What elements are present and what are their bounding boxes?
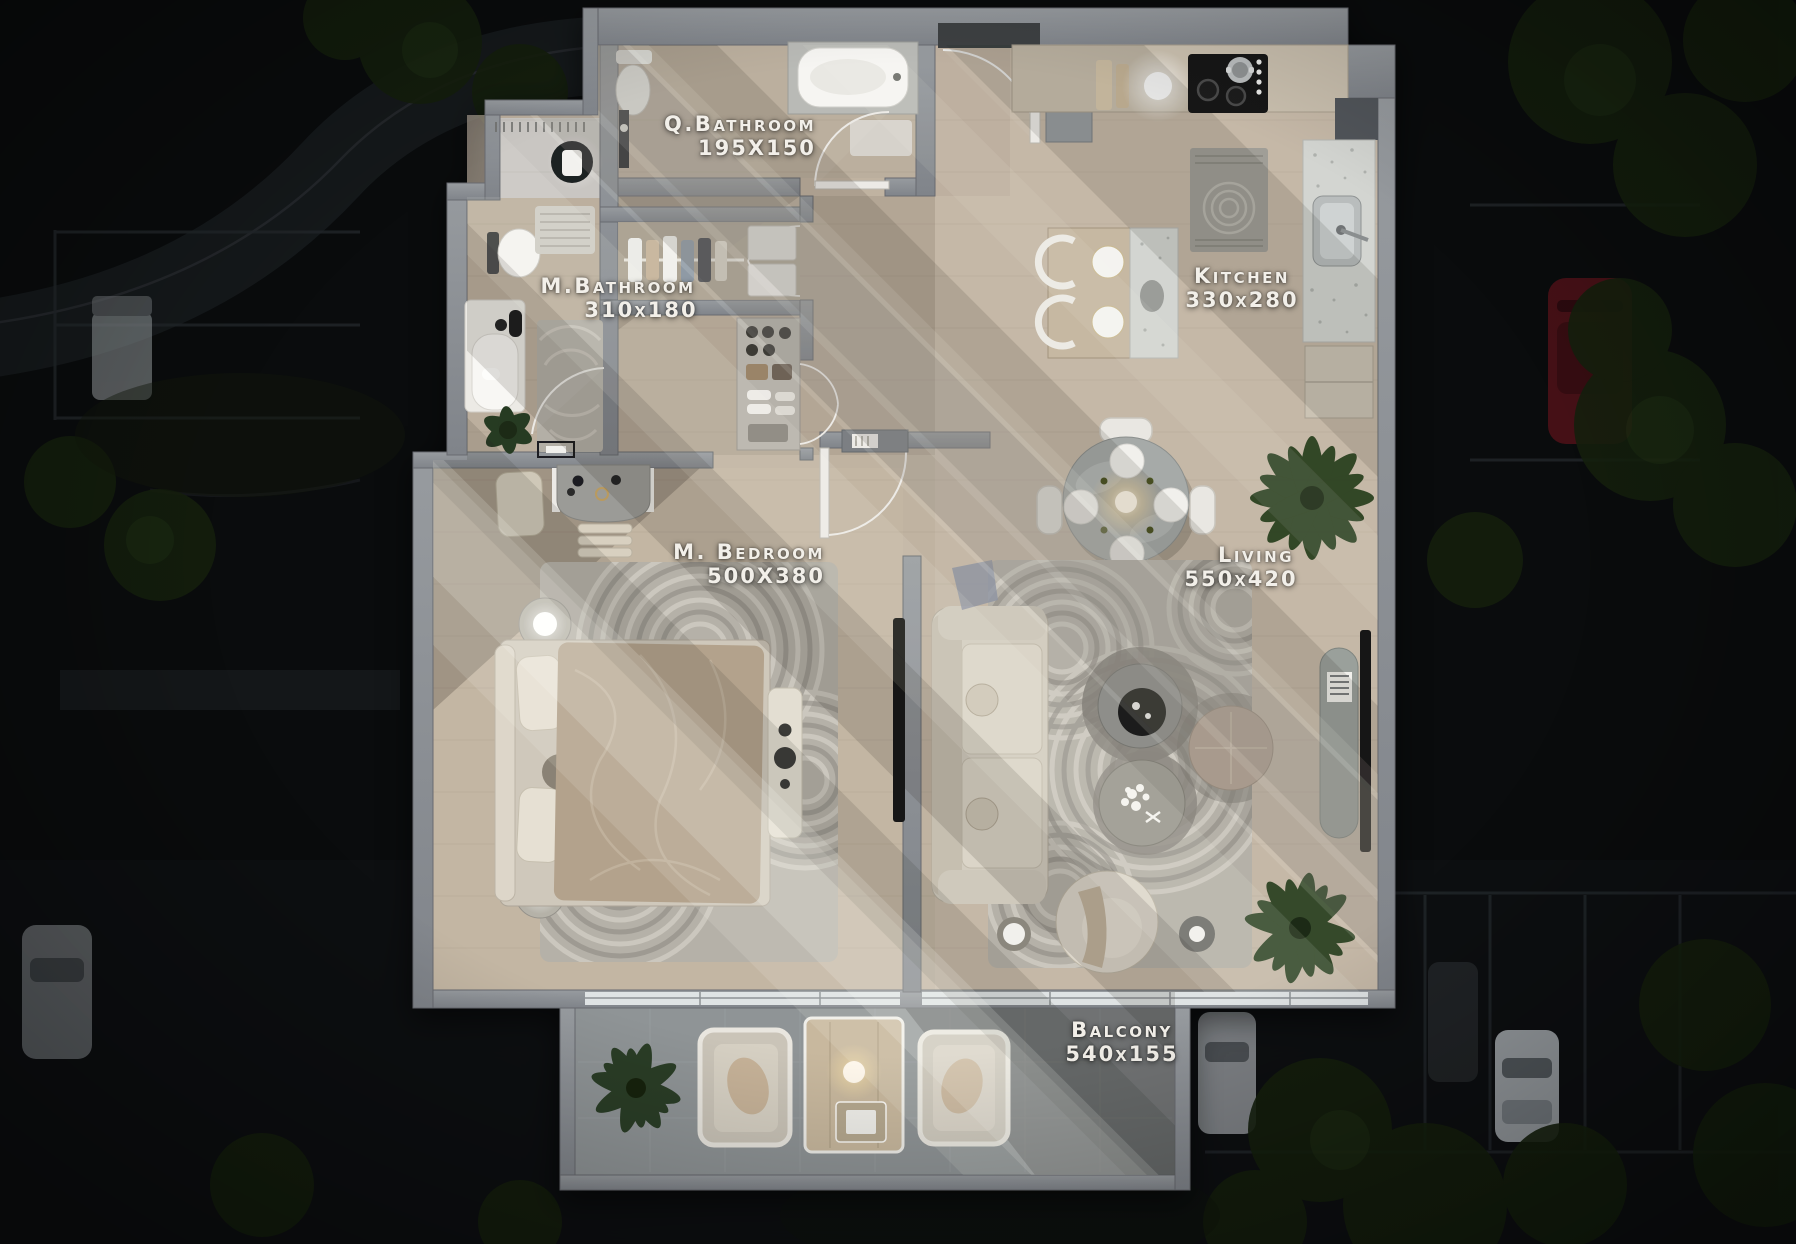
room-dimensions: 500X380 xyxy=(707,564,825,588)
room-dimensions: 310x180 xyxy=(584,298,697,322)
room-label-m-bathroom: M.Bathroom 310x180 xyxy=(538,274,697,322)
floor-plan-scene: Q.Bathroom 195X150 M.Bathroom 310x180 Ki… xyxy=(0,0,1796,1244)
room-label-m-bedroom: M. Bedroom 500X380 xyxy=(673,540,825,588)
room-label-q-bathroom: Q.Bathroom 195X150 xyxy=(664,112,816,160)
room-name: M.Bathroom xyxy=(540,274,695,298)
room-name: Balcony xyxy=(1071,1018,1173,1042)
floor-plan-rendering xyxy=(0,0,1796,1244)
room-dimensions: 195X150 xyxy=(698,136,816,160)
range-hood-block xyxy=(1335,98,1378,140)
room-name: Q.Bathroom xyxy=(664,112,816,136)
room-name: M. Bedroom xyxy=(673,540,825,564)
room-label-living: Living 550x420 xyxy=(1214,543,1297,591)
room-dimensions: 330x280 xyxy=(1185,288,1298,312)
side-table-light xyxy=(997,917,1031,951)
room-dimensions: 550x420 xyxy=(1184,567,1297,591)
balcony-chair-left xyxy=(700,1030,790,1145)
room-label-kitchen: Kitchen 330x280 xyxy=(1185,264,1298,312)
entry-doormat xyxy=(938,23,1040,48)
room-name: Living xyxy=(1218,543,1294,567)
room-name: Kitchen xyxy=(1194,264,1290,288)
parked-truck xyxy=(92,296,152,400)
room-label-balcony: Balcony 540x155 xyxy=(1065,1018,1178,1066)
room-dimensions: 540x155 xyxy=(1065,1042,1178,1066)
